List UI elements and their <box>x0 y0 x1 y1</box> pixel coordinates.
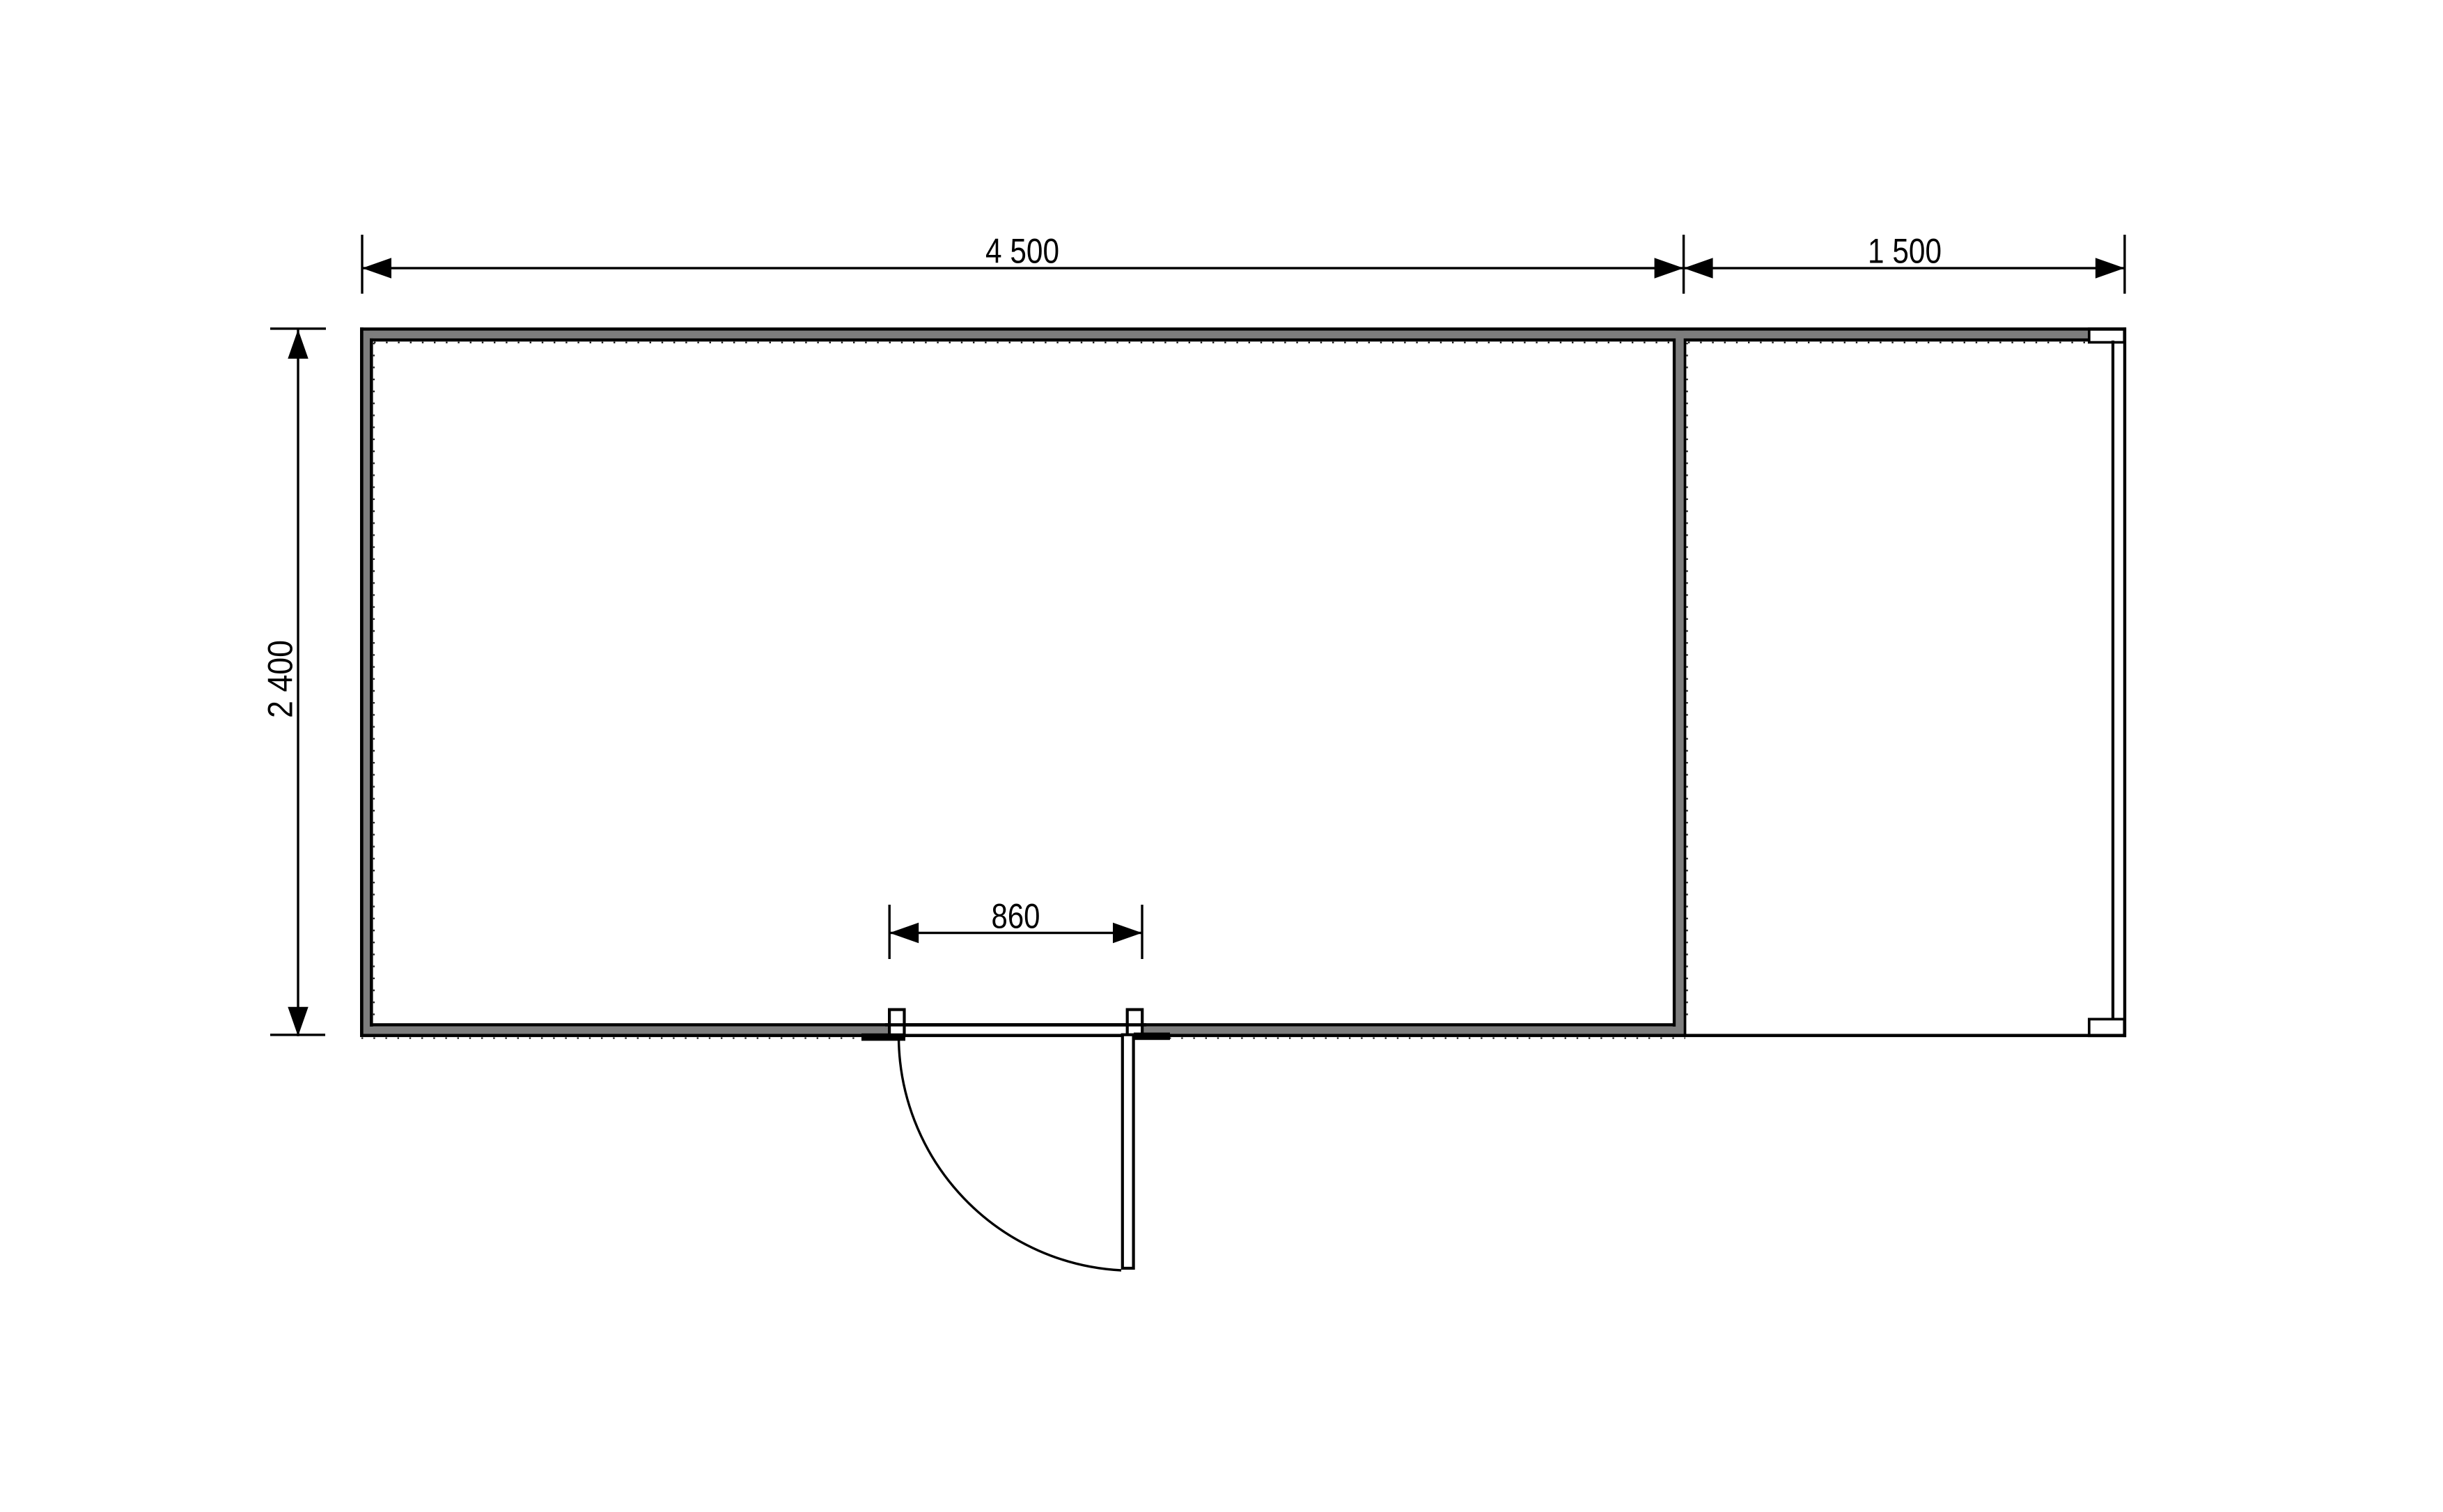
svg-text:2 400: 2 400 <box>260 640 300 718</box>
svg-text:4 500: 4 500 <box>985 231 1059 271</box>
svg-text:860: 860 <box>992 896 1040 936</box>
svg-text:1 500: 1 500 <box>1868 231 1942 271</box>
